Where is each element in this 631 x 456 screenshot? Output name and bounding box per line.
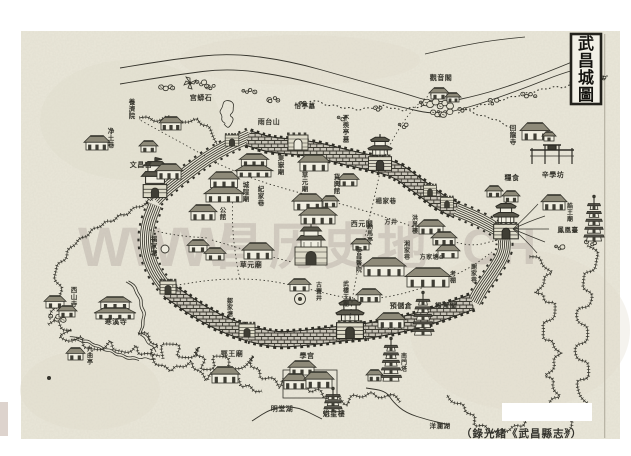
svg-text:楊家巷: 楊家巷 [376, 196, 397, 205]
svg-text:怡亭墓: 怡亭墓 [295, 101, 316, 110]
svg-text:雨台山: 雨台山 [258, 117, 281, 126]
svg-text:城隍廟: 城隍廟 [243, 180, 250, 203]
svg-text:（錄光緒《武昌縣志》）: （錄光緒《武昌縣志》） [461, 427, 582, 440]
svg-text:魁星樓: 魁星樓 [323, 409, 346, 418]
svg-text:湘家巷: 湘家巷 [403, 240, 410, 261]
svg-text:棂宫閣: 棂宫閣 [435, 301, 458, 310]
svg-text:方家塘O: 方家塘O [420, 253, 445, 261]
svg-text:方井: 方井 [384, 218, 397, 226]
svg-text:洋瀾湖: 洋瀾湖 [430, 421, 451, 430]
svg-text:紀家巷: 紀家巷 [257, 184, 265, 207]
svg-text:謝家巷: 謝家巷 [470, 263, 477, 284]
svg-text:泰昌醫院: 泰昌醫院 [355, 246, 363, 274]
svg-text:洪晁樓: 洪晁樓 [412, 214, 418, 235]
svg-text:鄒家塘: 鄒家塘 [226, 297, 233, 318]
svg-text:誥王廟: 誥王廟 [567, 202, 573, 223]
svg-text:南門塔: 南門塔 [401, 352, 408, 373]
svg-text:不羨亭墓: 不羨亭墓 [342, 114, 350, 143]
svg-text:預儲倉: 預儲倉 [390, 301, 413, 310]
svg-text:養濟院: 養濟院 [129, 97, 136, 120]
svg-text:觀音閣: 觀音閣 [430, 73, 453, 82]
svg-text:武樓王廟: 武樓王廟 [343, 280, 349, 308]
svg-text:勅馬亭: 勅馬亭 [366, 223, 373, 244]
svg-text:文昌宫: 文昌宫 [130, 160, 153, 169]
svg-text:草元廟: 草元廟 [302, 170, 309, 193]
svg-text:東嶽廟: 東嶽廟 [278, 153, 285, 176]
svg-text:古賽井: 古賽井 [315, 281, 322, 302]
svg-text:九曲亭: 九曲亭 [86, 345, 93, 366]
svg-text:福家塘: 福家塘 [150, 234, 158, 257]
svg-text:明堂湖: 明堂湖 [271, 404, 294, 413]
svg-text:公館: 公館 [220, 206, 227, 221]
svg-text:回龍寺: 回龍寺 [510, 123, 517, 146]
svg-text:草元廟: 草元廟 [240, 260, 263, 269]
svg-text:辛學坊: 辛學坊 [542, 170, 565, 179]
svg-text:鄂王廟: 鄂王廟 [221, 349, 244, 358]
svg-text:貨興館: 貨興館 [334, 172, 341, 195]
svg-text:糧食: 糧食 [505, 173, 521, 182]
svg-text:宫蟒石: 宫蟒石 [190, 93, 213, 102]
svg-text:武昌城圖: 武昌城圖 [578, 34, 594, 104]
svg-text:鳳凰臺: 鳳凰臺 [558, 225, 579, 234]
svg-text:學宫: 學宫 [300, 351, 315, 360]
svg-text:净土巷: 净土巷 [107, 126, 115, 149]
svg-text:寒溪寺: 寒溪寺 [104, 317, 128, 326]
svg-text:西山寺: 西山寺 [71, 286, 78, 308]
svg-text:考棚: 考棚 [450, 270, 456, 285]
